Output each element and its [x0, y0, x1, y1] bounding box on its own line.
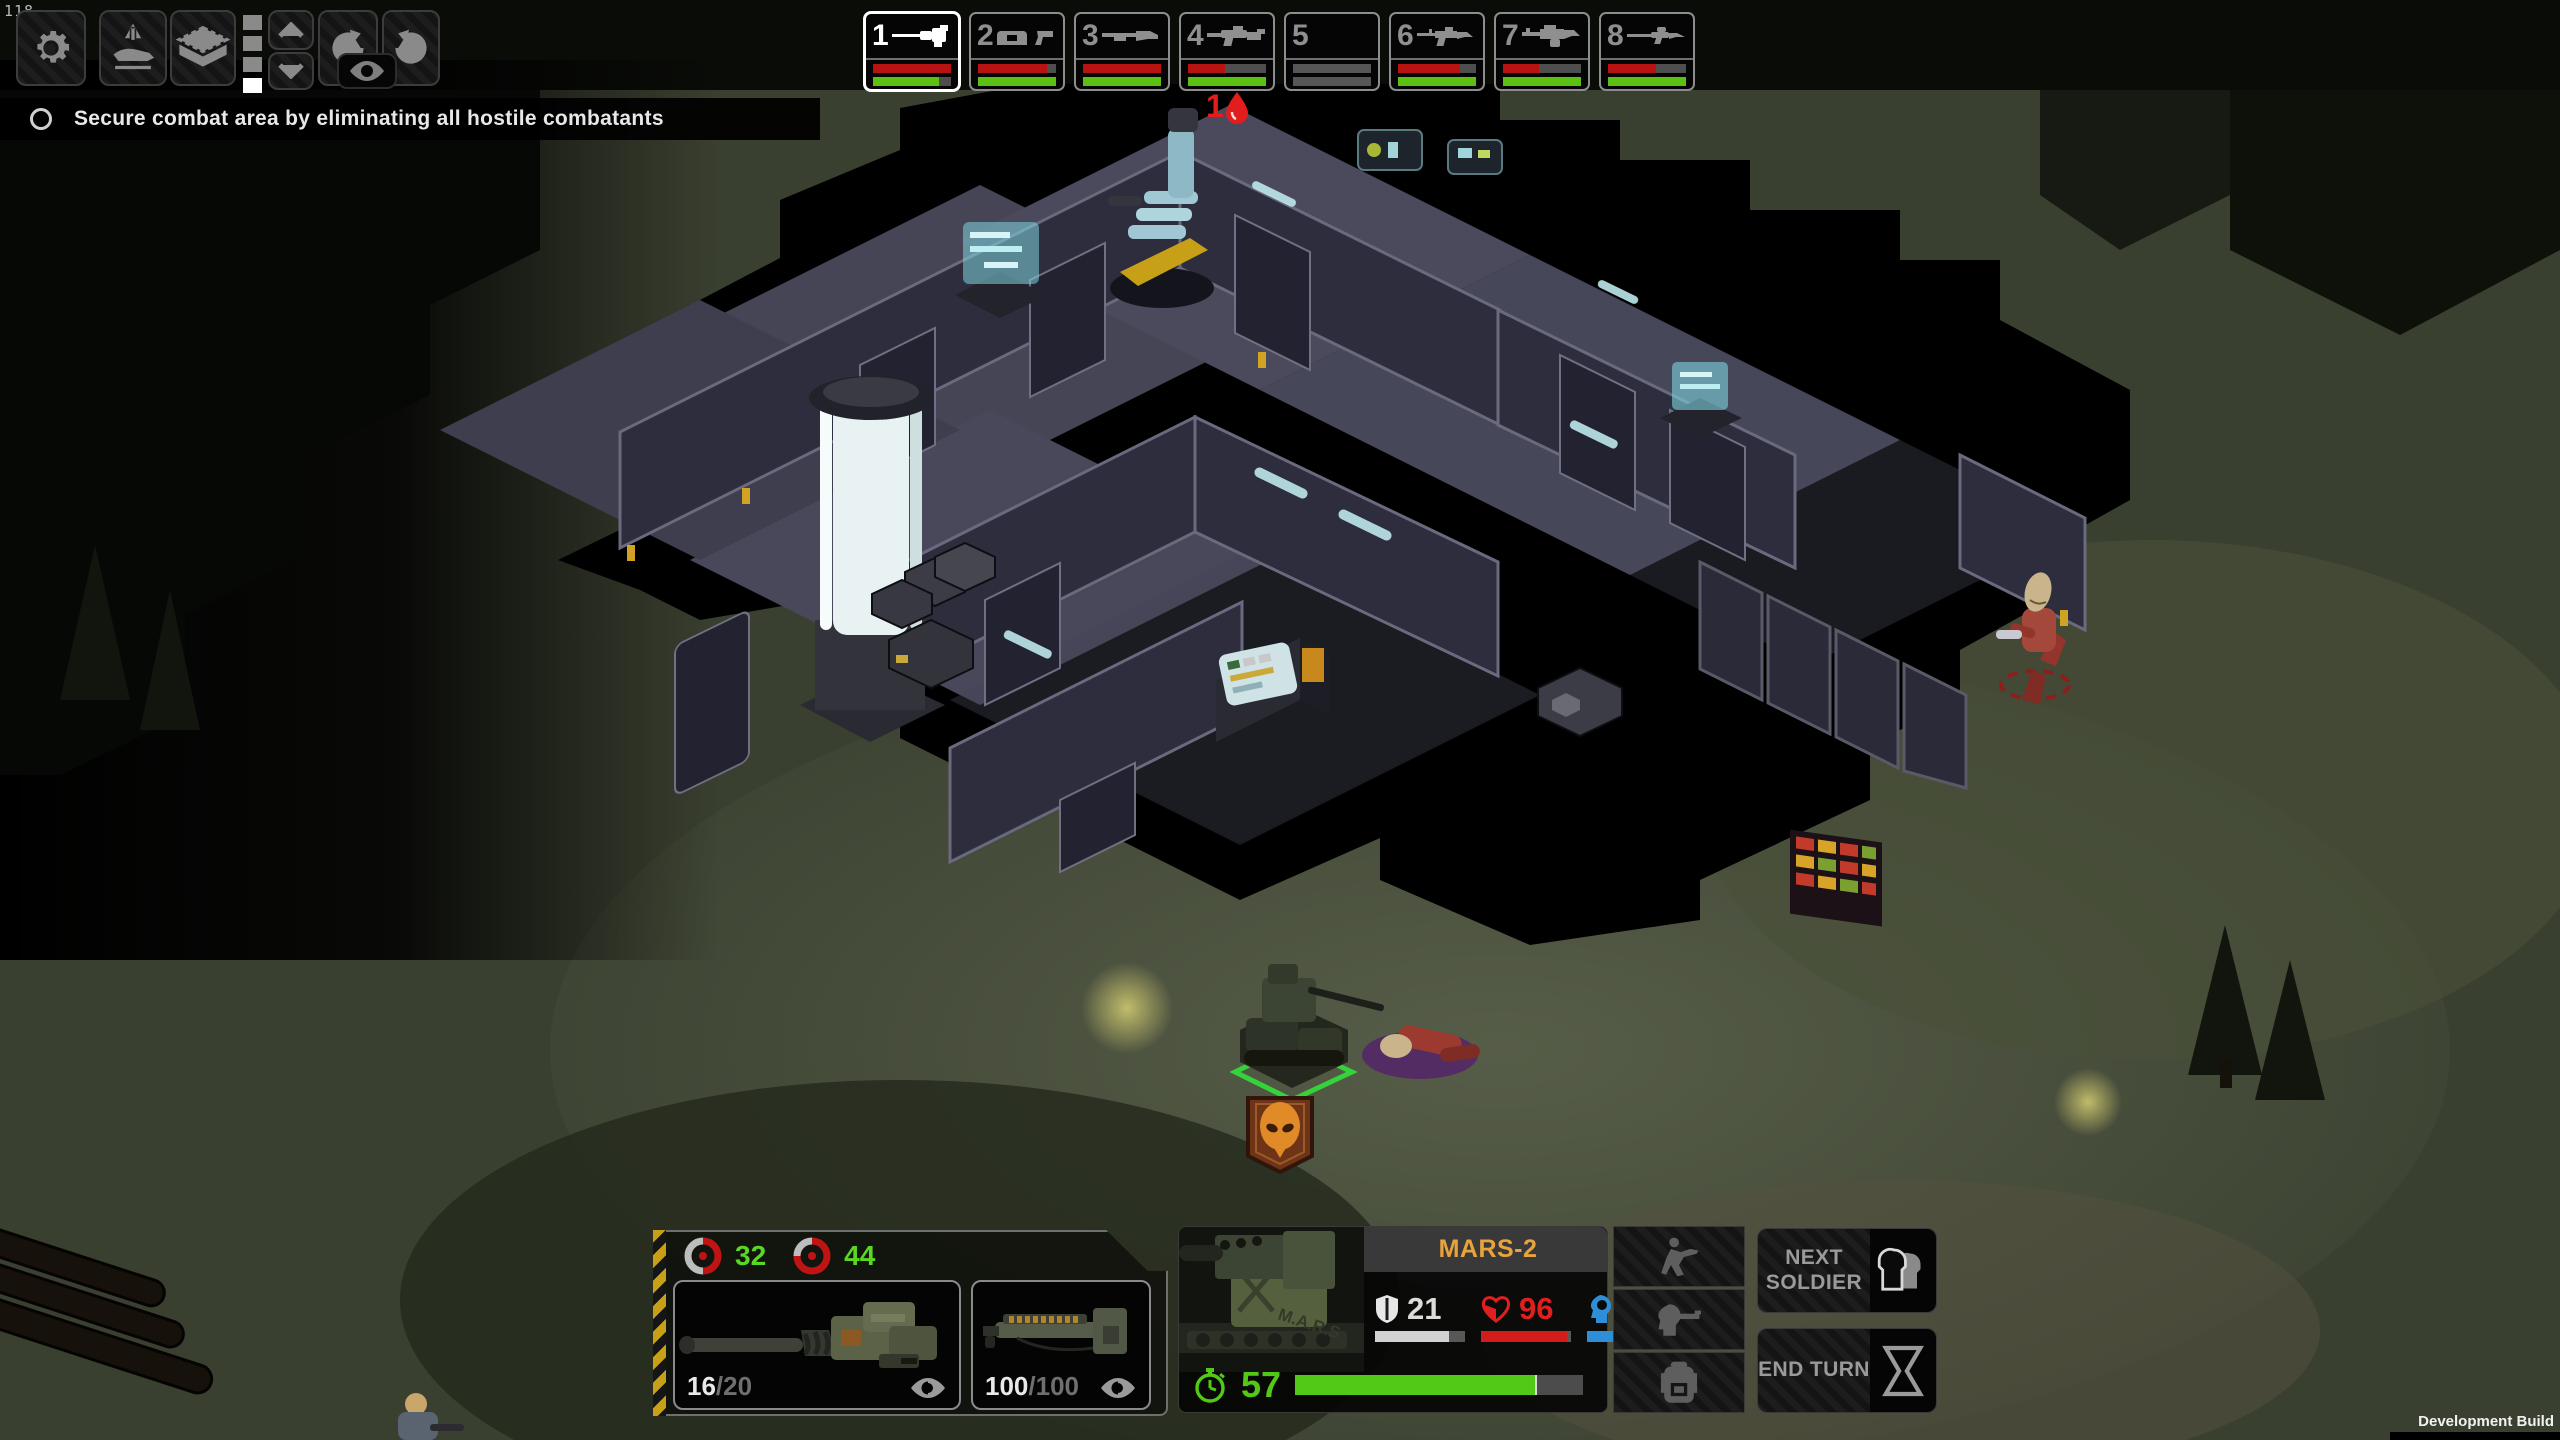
tu-progressbar	[1295, 1375, 1583, 1395]
soldier-slot-6[interactable]: 6	[1389, 12, 1485, 91]
eye-icon[interactable]	[907, 1376, 949, 1400]
overwatch-button[interactable]	[1613, 1289, 1745, 1350]
build-watermark: Development Build	[2418, 1413, 2554, 1430]
ground-glow	[2054, 1068, 2122, 1136]
evac-button[interactable]	[99, 10, 167, 86]
soldier-slot-5[interactable]: 5	[1284, 12, 1380, 91]
level-indicator	[243, 12, 262, 96]
autocannon-icon	[890, 23, 952, 49]
crouch-stance-button[interactable]	[1613, 1226, 1745, 1287]
stance-column	[1613, 1226, 1745, 1413]
inventory-button[interactable]	[1613, 1352, 1745, 1413]
two-soldiers-icon	[1875, 1243, 1931, 1299]
backpack-icon	[1659, 1360, 1699, 1406]
soldier-slot-3[interactable]: 3	[1074, 12, 1170, 91]
ammo-counter: 16/20	[687, 1371, 752, 1402]
reticle-icon	[683, 1236, 723, 1276]
level-indicator-current	[243, 78, 262, 93]
armor-bar	[1375, 1331, 1465, 1342]
end-turn-button[interactable]: END TURN	[1757, 1328, 1937, 1413]
health-bar	[873, 64, 951, 73]
crouch-soldier-icon	[1659, 1236, 1699, 1278]
reticle-icon	[792, 1236, 832, 1276]
bleed-indicator: 1	[1206, 88, 1250, 125]
time-units-row: 57	[1193, 1357, 1593, 1413]
chevron-down-icon	[278, 63, 304, 79]
soldier-slot-1[interactable]: 1	[864, 12, 960, 91]
hourglass-icon	[1880, 1344, 1926, 1398]
storage-rack	[1790, 830, 1882, 927]
selected-unit-panel: MARS-2 M.A.R.S 21 96	[1178, 1226, 1608, 1413]
autocannon-image	[675, 1286, 959, 1382]
level-up-button[interactable]	[268, 10, 314, 50]
medikit-pistol-icon	[995, 23, 1057, 49]
unit-portrait: M.A.R.S	[1179, 1227, 1364, 1372]
tactical-map[interactable]	[0, 0, 2560, 1440]
primary-weapon-card[interactable]: 16/20	[673, 1280, 961, 1410]
health-bar	[1481, 1331, 1571, 1342]
squad-bar: 1 2 3 4	[864, 12, 1695, 91]
lmg-icon	[1520, 23, 1582, 49]
objective-status-icon	[30, 108, 52, 130]
ammo-counter: 100/100	[985, 1371, 1079, 1402]
gear-icon	[28, 25, 74, 71]
hazard-stripe	[653, 1230, 666, 1416]
shotgun-icon	[1100, 23, 1162, 49]
next-soldier-icon	[1870, 1229, 1936, 1312]
tu-bar	[873, 77, 951, 86]
end-turn-label: END TURN	[1758, 1329, 1870, 1412]
weapon-panel: 32 44	[653, 1230, 1168, 1416]
assault-rifle-icon	[1415, 23, 1477, 49]
layers-icon	[176, 23, 230, 73]
battle-rifle-icon	[1205, 23, 1267, 49]
blood-drop-icon	[1224, 90, 1250, 124]
aim-head-icon	[1657, 1300, 1701, 1340]
morale-head-icon	[1587, 1294, 1613, 1324]
health-heart-icon	[1481, 1295, 1511, 1323]
next-soldier-label: NEXT SOLDIER	[1758, 1229, 1870, 1312]
level-view-button[interactable]	[170, 10, 236, 86]
armor-shield-icon	[1375, 1294, 1399, 1324]
soldier-slot-4[interactable]: 4	[1179, 12, 1275, 91]
eye-icon	[347, 59, 387, 83]
bleed-count: 1	[1206, 88, 1224, 125]
bottom-bar	[2390, 1432, 2560, 1440]
health-stat: 96	[1481, 1291, 1553, 1327]
end-turn-icon	[1870, 1329, 1936, 1412]
fire-mode-auto[interactable]: 44	[792, 1236, 875, 1276]
alien-kill-badge[interactable]	[1248, 1098, 1312, 1172]
soldier-slot-8[interactable]: 8	[1599, 12, 1695, 91]
ground-glow	[1081, 962, 1173, 1054]
visibility-button[interactable]	[337, 53, 397, 89]
sniper-rifle-icon	[1625, 23, 1687, 49]
armor-stat: 21	[1375, 1291, 1441, 1327]
tu-value: 57	[1241, 1364, 1281, 1406]
mission-objective: Secure combat area by eliminating all ho…	[0, 98, 820, 140]
secondary-weapon-card[interactable]: 100/100	[971, 1280, 1151, 1410]
chevron-up-icon	[278, 22, 304, 38]
next-soldier-button[interactable]: NEXT SOLDIER	[1757, 1228, 1937, 1313]
objective-text: Secure combat area by eliminating all ho…	[74, 107, 664, 131]
dropship-evac-icon	[107, 22, 159, 74]
battlescape-screen: 118 Secure combat	[0, 0, 2560, 1440]
fire-mode-bar: 32 44	[683, 1236, 875, 1276]
machine-gun-image	[973, 1288, 1149, 1378]
tu-stopwatch-icon	[1193, 1366, 1227, 1404]
settings-button[interactable]	[16, 10, 86, 86]
level-down-button[interactable]	[268, 52, 314, 90]
soldier-slot-7[interactable]: 7	[1494, 12, 1590, 91]
unit-name: MARS-2	[1369, 1227, 1607, 1272]
fire-mode-burst[interactable]: 32	[683, 1236, 766, 1276]
soldier-slot-2[interactable]: 2	[969, 12, 1065, 91]
eye-icon[interactable]	[1097, 1376, 1139, 1400]
